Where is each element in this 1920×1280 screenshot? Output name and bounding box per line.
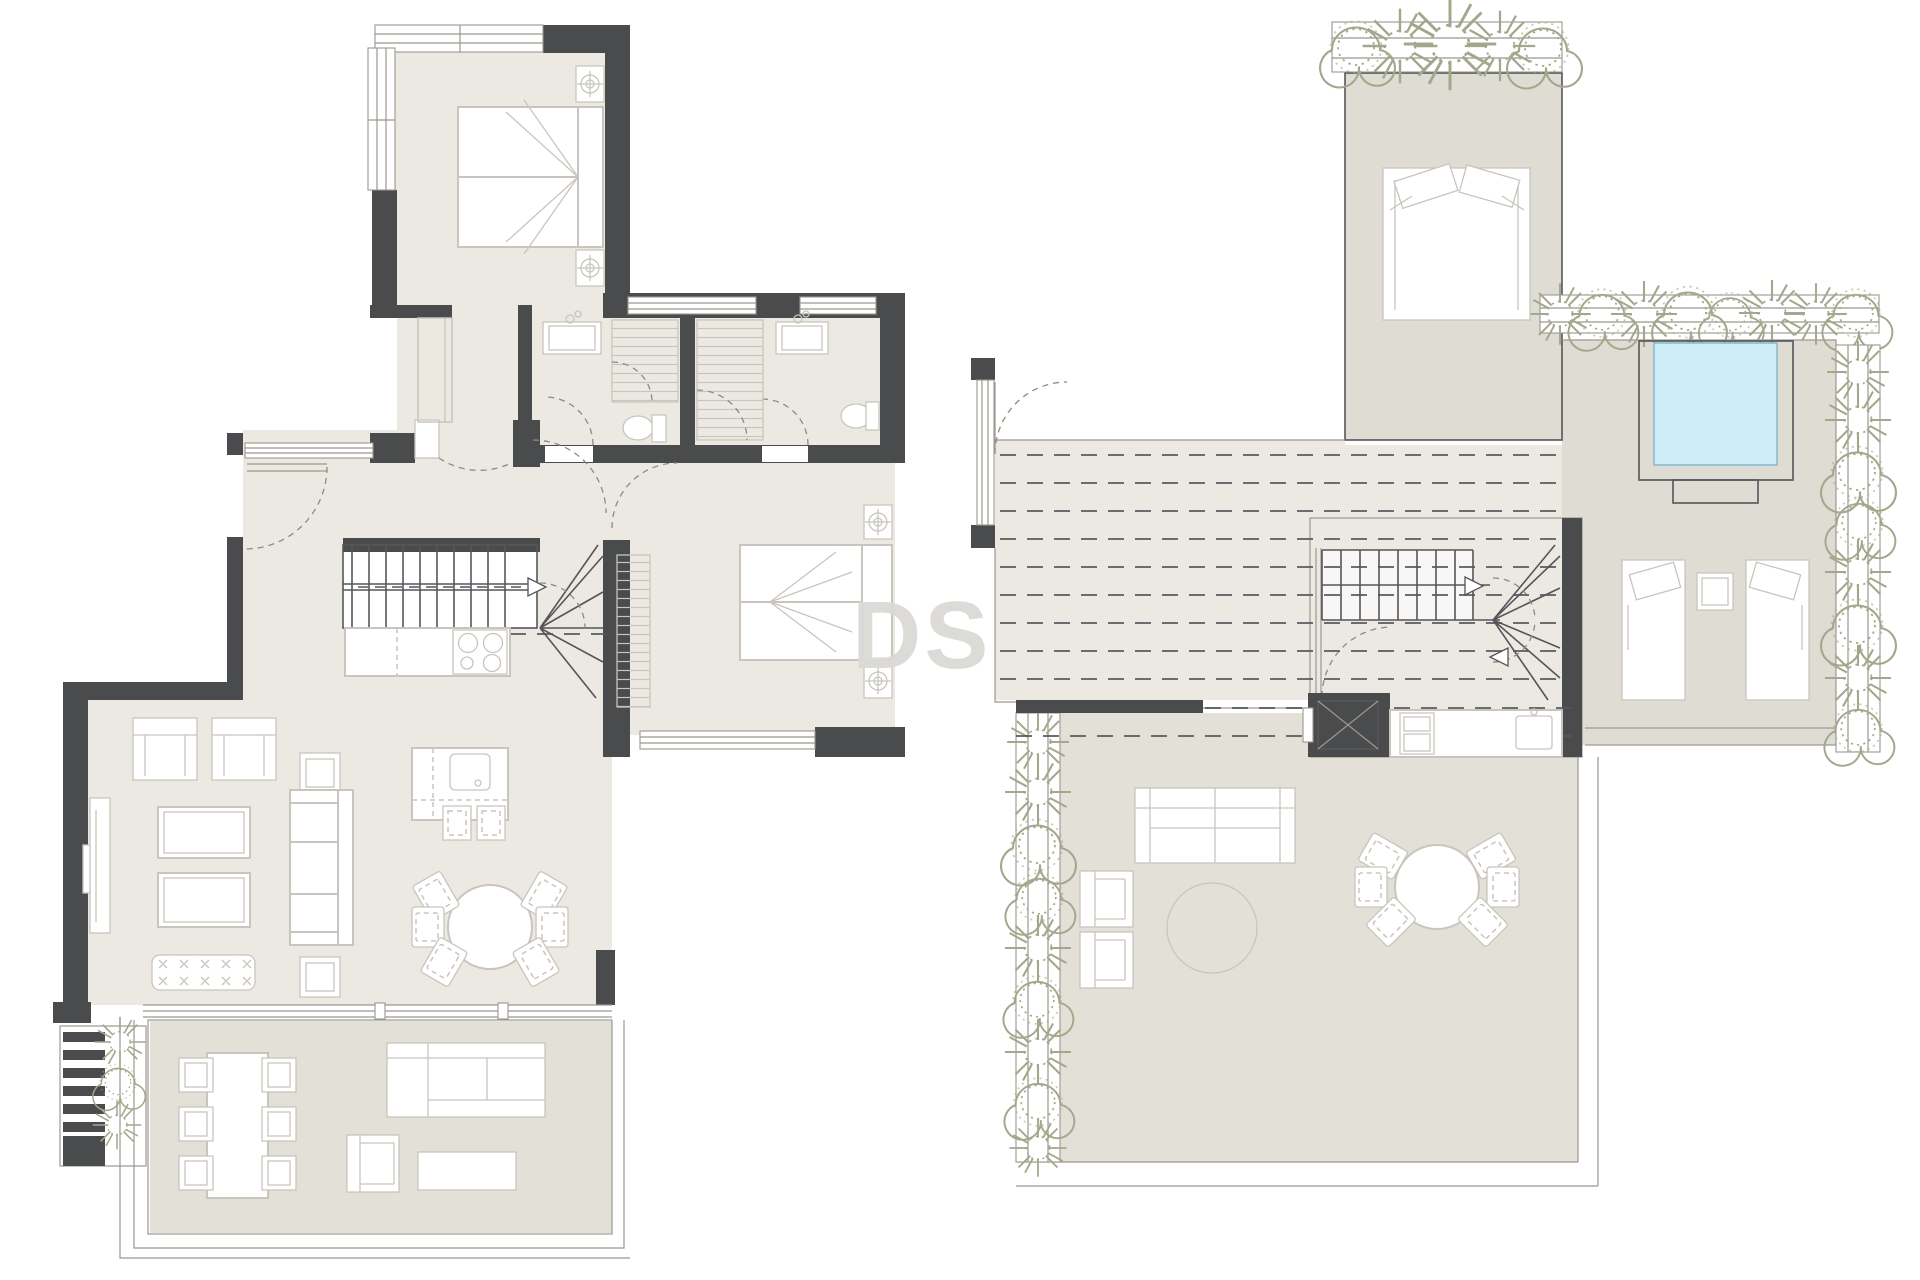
bar-stool	[477, 806, 505, 840]
outdoor-sofa	[387, 1043, 545, 1117]
coffee-table	[158, 873, 250, 927]
bedroom1-window-left	[368, 48, 395, 190]
nightstand	[576, 250, 604, 286]
watermark-text: DS	[852, 582, 991, 689]
coffee-table	[158, 807, 250, 858]
shower	[697, 320, 763, 440]
nightstand	[576, 66, 604, 102]
chillout-lounge	[1383, 164, 1530, 320]
bedroom2-window	[640, 731, 815, 749]
kitchen	[345, 628, 510, 676]
bedroom1-window-top	[375, 25, 543, 52]
bed-double	[458, 100, 603, 254]
entry-window	[245, 443, 373, 458]
living-room-glass-doors	[143, 1003, 612, 1019]
armchair	[133, 718, 197, 780]
ground-floor-plan	[53, 25, 905, 1258]
outdoor-armchair	[347, 1135, 399, 1192]
side-table	[300, 753, 340, 793]
toilet	[623, 415, 666, 442]
sun-lounger	[1622, 560, 1685, 700]
pool	[1654, 343, 1777, 465]
outdoor-coffee-table	[418, 1152, 516, 1190]
bathroom2-window	[800, 297, 876, 314]
dining-table-round	[412, 871, 568, 988]
nightstand	[864, 505, 892, 539]
outdoor-dining-table	[179, 1053, 296, 1198]
toilet	[841, 402, 879, 430]
skylight-shaft	[1303, 693, 1390, 757]
sofa	[290, 790, 353, 945]
outdoor-armchair	[1080, 871, 1133, 927]
wardrobe	[617, 555, 650, 707]
sun-lounger	[1746, 560, 1809, 700]
lower-terrace-wall	[1016, 700, 1203, 713]
outdoor-armchair	[1080, 932, 1133, 988]
lounger-side-table	[1697, 573, 1733, 610]
floor-plan-drawing: DS	[0, 0, 1920, 1280]
armchair	[212, 718, 276, 780]
bar-stool	[443, 806, 471, 840]
upper-floor-plan	[971, 0, 1896, 1186]
outdoor-sofa	[1135, 788, 1295, 863]
outdoor-kitchen	[1390, 709, 1562, 757]
bathroom1-window	[628, 297, 756, 314]
exterior-steps	[60, 1026, 146, 1166]
shower	[612, 320, 678, 402]
floor-plan-sheet: DS	[0, 0, 1920, 1280]
ottoman	[152, 955, 255, 990]
side-table	[300, 957, 340, 997]
